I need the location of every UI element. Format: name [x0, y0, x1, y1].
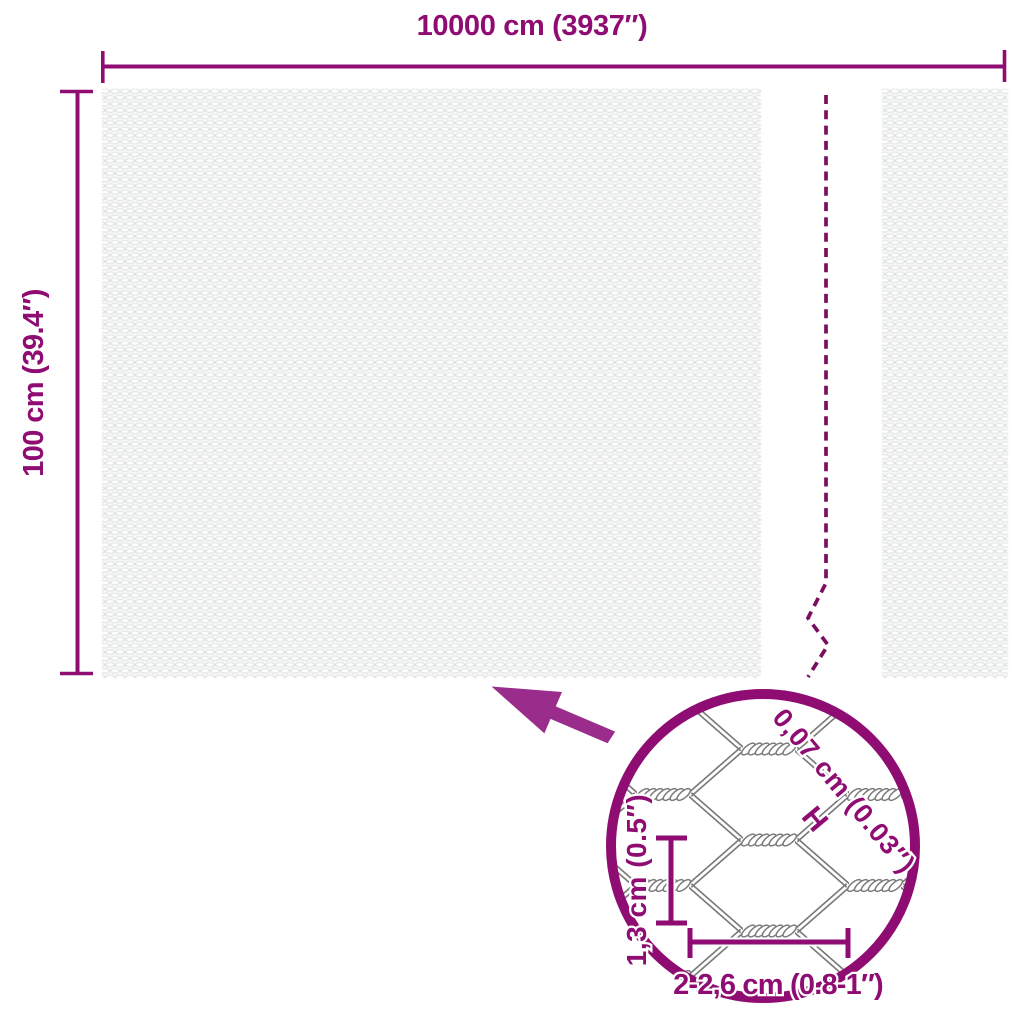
svg-text:100 cm (39.4″): 100 cm (39.4″) [18, 289, 50, 477]
svg-text:1,3 cm (0.5″): 1,3 cm (0.5″) [621, 794, 652, 966]
svg-text:2-2,6 cm (0.8-1″): 2-2,6 cm (0.8-1″) [673, 969, 883, 1001]
svg-text:10000 cm (3937″): 10000 cm (3937″) [417, 10, 648, 42]
